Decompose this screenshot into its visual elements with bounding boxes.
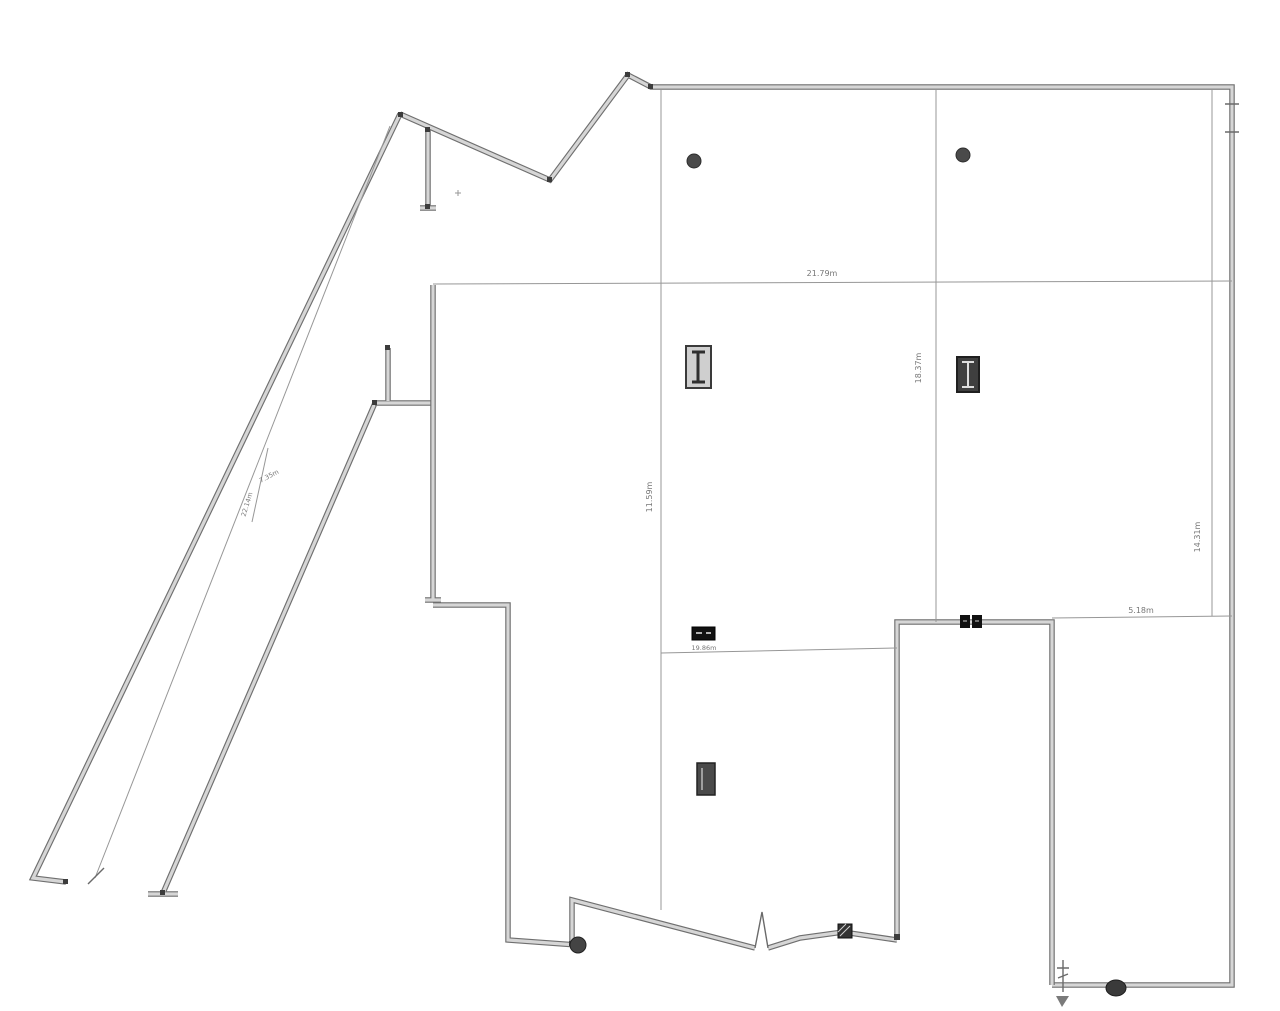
round-column-icon [687,154,701,168]
dimension-line-diagonal-cross [252,448,268,522]
label-tag-icon [692,627,715,640]
wall-hall-left [425,285,441,600]
floor-plan-page: 21.79m 18.37m 11.59m 19.86m 5.18m 14.31m… [0,0,1280,1011]
wall-junction-dots [63,72,900,946]
dimension-tick-diagonal-end [88,868,104,884]
dimension-line-right-lower [1052,616,1232,618]
wall-lower-right-room [897,622,1052,985]
ibeam-column-icon [957,357,979,392]
grid-line-horizontal-upper [433,281,1232,284]
wall-outer-shell [400,75,1232,985]
corner-column-icon [570,937,586,953]
dimension-text-right-lower-width: 5.18m [1128,606,1154,615]
filled-column-icon [697,763,715,795]
plus-reference-mark [455,190,461,196]
door-jamb-icon [838,924,852,938]
round-column-icon [956,148,970,162]
ibeam-column-icon [686,346,711,388]
dimension-text-right-bay-height: 18.37m [914,352,923,383]
wall-peak-stub [420,130,436,208]
dimension-text-top-width: 21.79m [807,269,838,278]
wall-break-symbol [755,912,768,948]
corner-column-icon [1106,980,1126,996]
dimension-line-diagonal [95,126,390,878]
dimension-text-diagonal-clear-width: 7.35m [258,468,280,485]
floor-plan-canvas: 21.79m 18.37m 11.59m 19.86m 5.18m 14.31m… [0,0,1280,1011]
dimension-text-far-right-height: 14.31m [1193,521,1202,552]
wall-lower-left-step [433,605,577,945]
dimension-text-lower-hall-width: 19.86m [692,644,717,652]
dimension-text-center-bay-height: 11.59m [645,481,654,512]
